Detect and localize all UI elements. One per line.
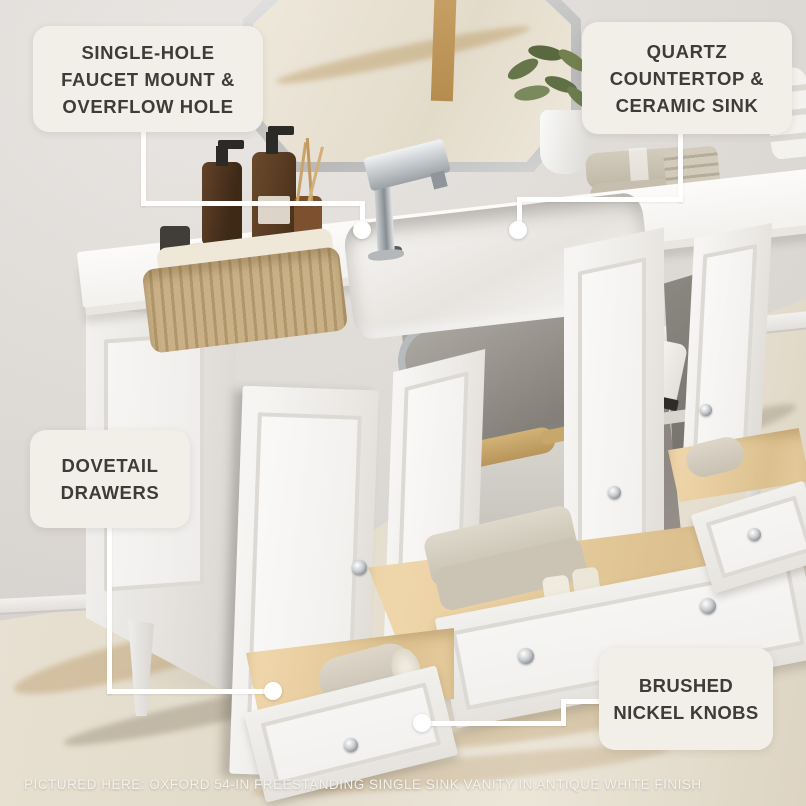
callout-text-line: DRAWERS: [61, 479, 160, 506]
callout-text-line: COUNTERTOP &: [610, 65, 765, 92]
connector-line: [517, 197, 522, 224]
marble-vein-reflection: [274, 19, 532, 91]
door-knob: [700, 404, 712, 416]
faucet-body: [374, 180, 395, 259]
pump-spout: [218, 140, 244, 149]
connector-dot: [353, 221, 371, 239]
callout-text-line: NICKEL KNOBS: [613, 699, 758, 726]
mirror-glass: [253, 0, 571, 162]
connector-line: [422, 721, 566, 726]
product-infographic: SINGLE-HOLE FAUCET MOUNT & OVERFLOW HOLE…: [0, 0, 806, 806]
faucet-tip: [430, 171, 447, 190]
caption: PICTURED HERE: OXFORD 54-IN FREESTANDING…: [24, 777, 702, 792]
brushed-nickel-knob: [518, 648, 534, 664]
door-knob: [352, 560, 367, 575]
callout-text-line: FAUCET MOUNT &: [61, 66, 235, 93]
pump-top: [266, 132, 278, 154]
pump-top: [216, 146, 228, 166]
door-panel: [693, 244, 757, 455]
connector-line: [141, 130, 146, 206]
callout-text-line: QUARTZ: [647, 38, 728, 65]
callout-quartz-countertop: QUARTZ COUNTERTOP & CERAMIC SINK: [582, 22, 792, 134]
callout-dovetail-drawers: DOVETAIL DRAWERS: [30, 430, 190, 528]
connector-line: [141, 201, 365, 206]
connector-line: [678, 132, 683, 202]
connector-line: [107, 689, 272, 694]
door-knob: [608, 486, 621, 499]
callout-text-line: BRUSHED: [639, 672, 733, 699]
callout-text-line: DOVETAIL: [62, 452, 159, 479]
connector-dot: [264, 682, 282, 700]
callout-text-line: CERAMIC SINK: [616, 92, 759, 119]
callout-brushed-nickel-knobs: BRUSHED NICKEL KNOBS: [599, 648, 773, 750]
brushed-nickel-knob: [344, 738, 358, 752]
wood-reflection: [431, 0, 457, 101]
connector-dot: [509, 221, 527, 239]
callout-text-line: OVERFLOW HOLE: [62, 93, 233, 120]
callout-faucet-mount: SINGLE-HOLE FAUCET MOUNT & OVERFLOW HOLE: [33, 26, 263, 132]
brushed-nickel-knob: [748, 528, 761, 541]
pump-spout: [268, 126, 294, 135]
callout-text-line: SINGLE-HOLE: [81, 39, 214, 66]
connector-line: [561, 699, 601, 704]
brushed-nickel-knob: [700, 598, 716, 614]
connector-line: [107, 526, 112, 694]
connector-dot: [413, 714, 431, 732]
connector-line: [517, 197, 683, 202]
